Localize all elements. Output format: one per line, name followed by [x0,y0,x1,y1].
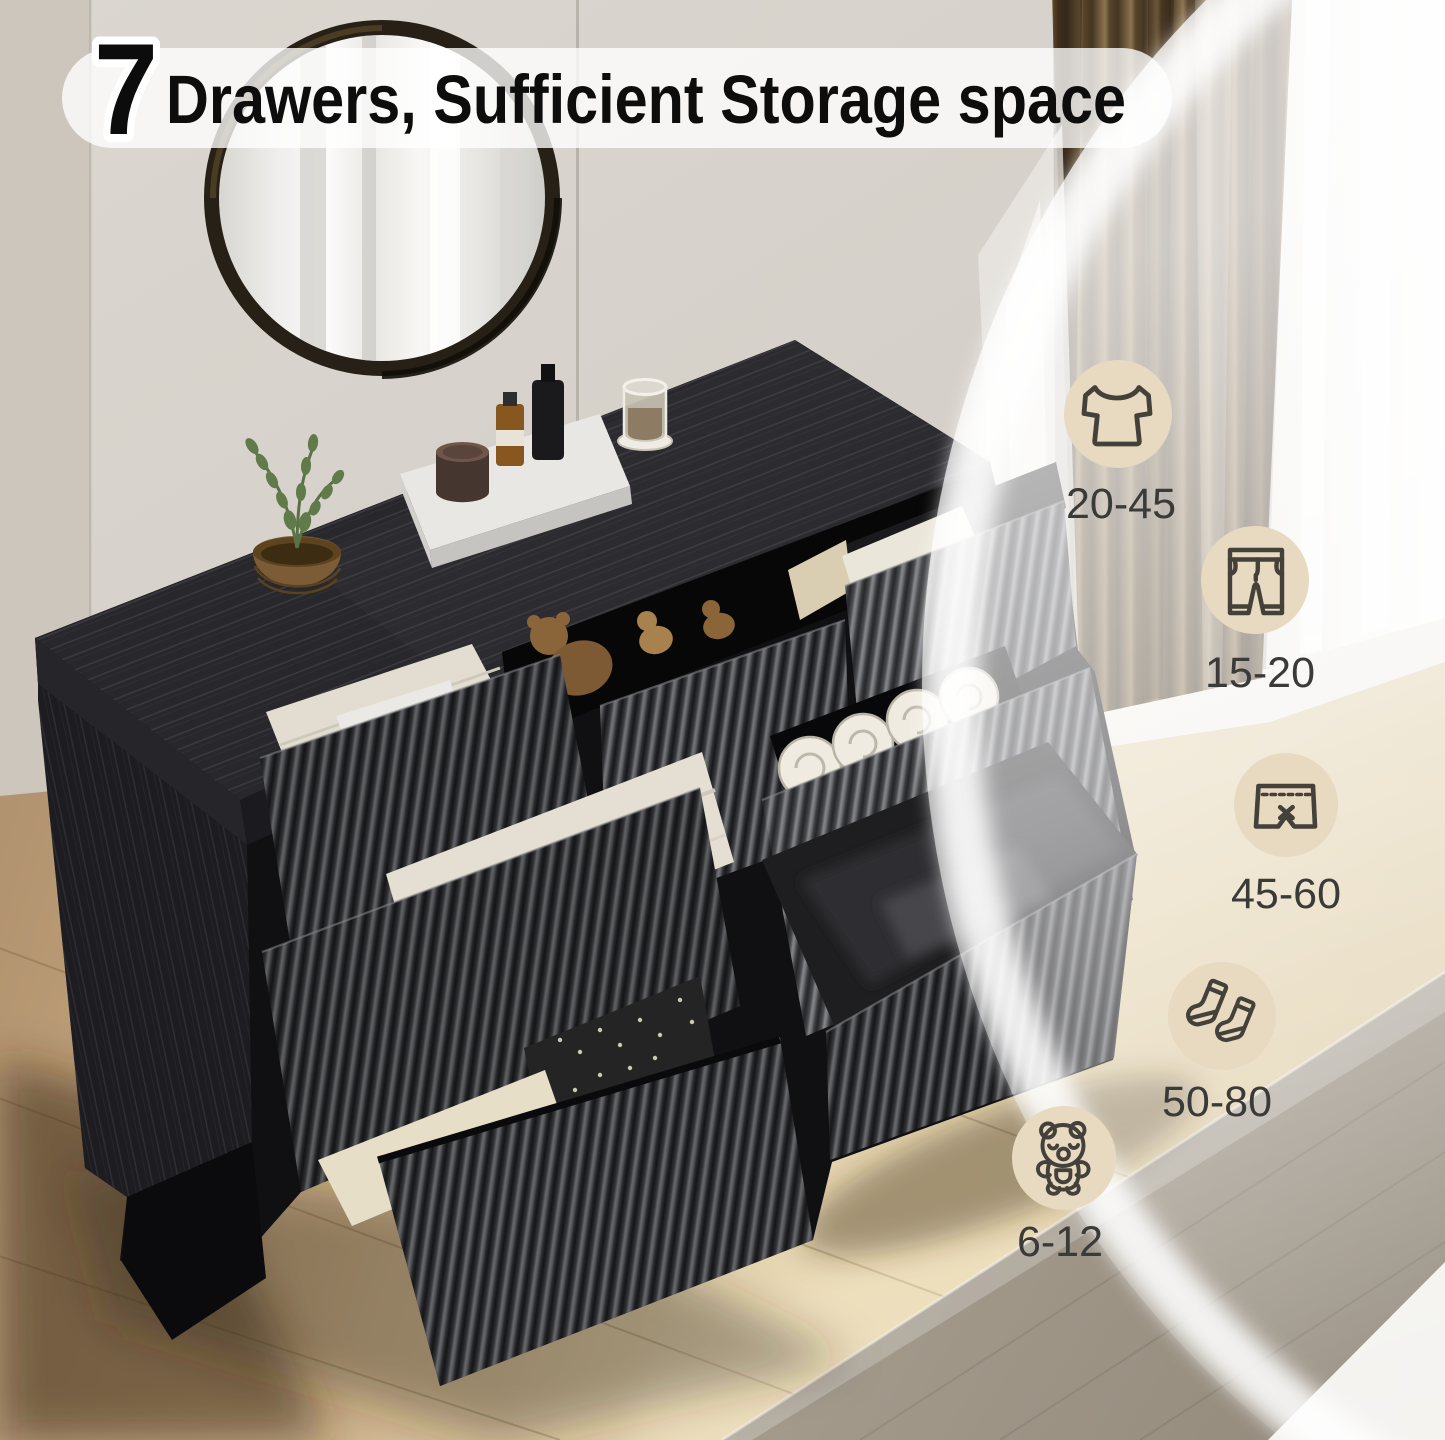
svg-text:50-80: 50-80 [1162,1078,1272,1126]
svg-text:45-60: 45-60 [1231,870,1341,918]
svg-text:15-20: 15-20 [1205,649,1315,697]
svg-text:6-12: 6-12 [1017,1218,1103,1266]
svg-text:7: 7 [94,16,158,162]
svg-text:20-45: 20-45 [1066,480,1176,528]
svg-text:Drawers, Sufficient Storage sp: Drawers, Sufficient Storage space [166,61,1126,138]
